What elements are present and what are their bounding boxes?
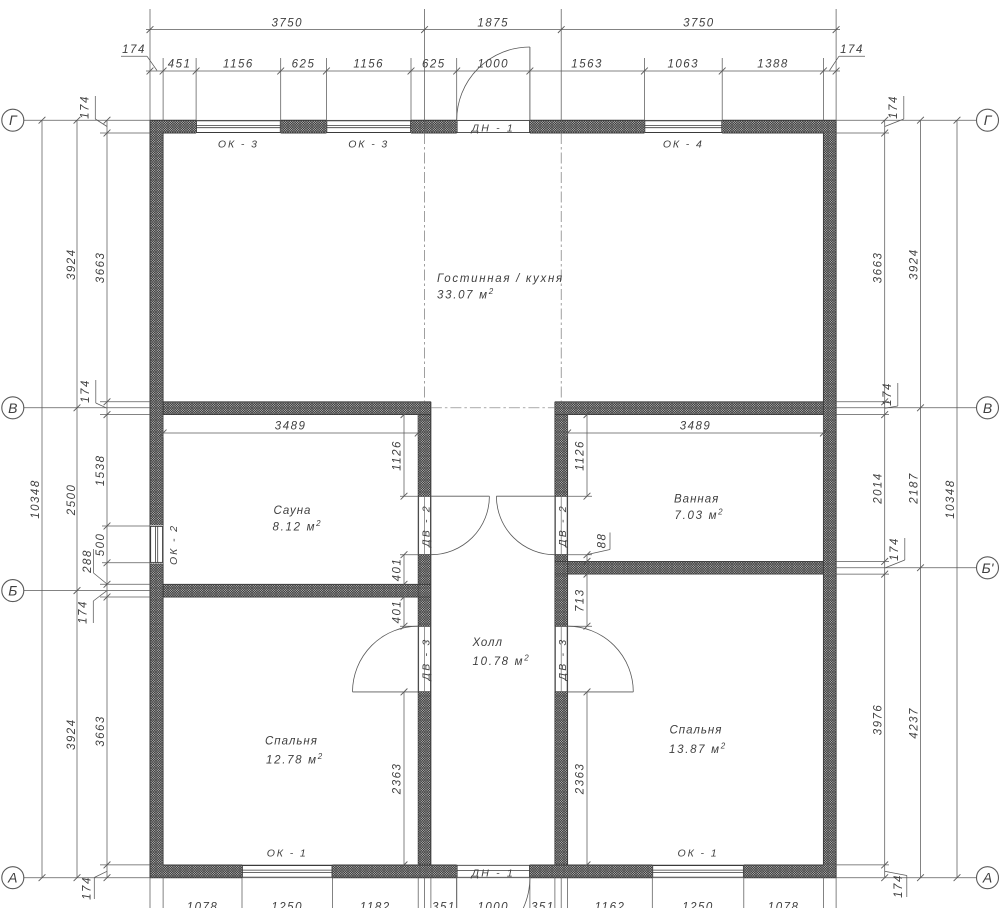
svg-text:451: 451	[168, 59, 192, 71]
svg-text:174: 174	[122, 44, 146, 56]
svg-text:2014: 2014	[873, 472, 885, 505]
svg-text:88: 88	[597, 533, 609, 549]
svg-text:Спальня: Спальня	[265, 736, 318, 748]
svg-text:1156: 1156	[223, 59, 254, 71]
svg-text:ДВ - 2: ДВ - 2	[420, 504, 432, 548]
svg-text:Спальня: Спальня	[670, 725, 723, 737]
svg-text:500: 500	[95, 533, 107, 557]
svg-text:351: 351	[531, 901, 555, 908]
svg-text:1000: 1000	[478, 901, 510, 908]
svg-text:3489: 3489	[680, 421, 712, 433]
svg-text:1156: 1156	[353, 59, 384, 71]
svg-text:1250: 1250	[682, 901, 714, 908]
svg-text:7.03 м2: 7.03 м2	[675, 507, 725, 522]
svg-text:А: А	[7, 870, 17, 886]
svg-text:3663: 3663	[95, 252, 107, 284]
svg-text:713: 713	[575, 588, 587, 612]
svg-text:625: 625	[422, 59, 446, 71]
svg-text:174: 174	[80, 95, 92, 119]
svg-text:4237: 4237	[909, 707, 921, 739]
svg-text:2363: 2363	[575, 763, 587, 796]
svg-text:174: 174	[78, 600, 90, 624]
svg-text:ДВ - 2: ДВ - 2	[557, 504, 569, 548]
svg-text:ДВ - 3: ДВ - 3	[420, 638, 432, 682]
svg-text:401: 401	[392, 600, 404, 624]
svg-text:3663: 3663	[873, 252, 885, 284]
svg-text:2187: 2187	[909, 472, 921, 505]
svg-text:ОК - 3: ОК - 3	[348, 138, 389, 150]
svg-text:Б: Б	[8, 583, 17, 599]
svg-text:1162: 1162	[595, 901, 626, 908]
svg-text:ОК - 3: ОК - 3	[218, 138, 259, 150]
svg-text:1078: 1078	[187, 901, 219, 908]
svg-text:ОК - 4: ОК - 4	[663, 138, 704, 150]
svg-text:13.87 м2: 13.87 м2	[669, 742, 727, 757]
svg-text:12.78 м2: 12.78 м2	[266, 752, 324, 767]
svg-text:174: 174	[80, 379, 92, 403]
svg-text:3924: 3924	[909, 248, 921, 280]
svg-text:1000: 1000	[478, 59, 510, 71]
svg-text:В: В	[8, 400, 17, 416]
svg-text:3976: 3976	[873, 704, 885, 736]
svg-text:174: 174	[888, 95, 900, 119]
svg-text:8.12 м2: 8.12 м2	[273, 519, 323, 534]
svg-text:Холл: Холл	[472, 637, 504, 649]
svg-text:174: 174	[889, 537, 901, 561]
svg-text:1875: 1875	[477, 17, 509, 29]
svg-text:В: В	[983, 400, 992, 416]
svg-text:3750: 3750	[272, 17, 304, 29]
svg-text:ОК - 2: ОК - 2	[168, 524, 180, 565]
svg-text:10.78 м2: 10.78 м2	[473, 653, 531, 668]
svg-text:401: 401	[392, 558, 404, 582]
svg-text:3924: 3924	[66, 248, 78, 280]
svg-text:174: 174	[893, 874, 905, 898]
svg-text:10348: 10348	[945, 479, 957, 518]
svg-text:ОК - 1: ОК - 1	[267, 847, 308, 859]
svg-text:ДН - 1: ДН - 1	[471, 868, 515, 880]
svg-text:1063: 1063	[668, 59, 700, 71]
svg-text:ДН - 1: ДН - 1	[471, 122, 515, 134]
svg-text:10348: 10348	[30, 479, 42, 518]
svg-text:3924: 3924	[66, 718, 78, 750]
svg-text:ОК - 1: ОК - 1	[678, 847, 719, 859]
svg-text:Сауна: Сауна	[274, 505, 312, 517]
svg-text:3489: 3489	[275, 421, 307, 433]
svg-text:1078: 1078	[768, 901, 800, 908]
svg-text:Б': Б'	[982, 560, 995, 576]
svg-text:174: 174	[82, 876, 94, 900]
svg-text:ДВ - 3: ДВ - 3	[557, 638, 569, 682]
svg-text:174: 174	[840, 44, 864, 56]
svg-text:1250: 1250	[271, 901, 303, 908]
svg-text:174: 174	[882, 382, 894, 406]
svg-text:1126: 1126	[575, 440, 587, 471]
svg-text:1388: 1388	[757, 59, 789, 71]
svg-text:А: А	[982, 870, 992, 886]
svg-text:288: 288	[82, 549, 94, 574]
svg-text:3663: 3663	[95, 715, 107, 747]
svg-text:1538: 1538	[95, 455, 107, 487]
svg-text:351: 351	[432, 901, 456, 908]
svg-text:Ванная: Ванная	[674, 493, 719, 505]
svg-text:2500: 2500	[66, 484, 78, 517]
svg-text:1182: 1182	[360, 901, 391, 908]
svg-text:33.07 м2: 33.07 м2	[437, 287, 495, 302]
svg-text:625: 625	[292, 59, 316, 71]
svg-text:1563: 1563	[571, 59, 603, 71]
svg-text:Гостинная / кухня: Гостинная / кухня	[437, 273, 564, 285]
svg-text:1126: 1126	[392, 440, 404, 471]
svg-text:3750: 3750	[683, 17, 715, 29]
svg-text:2363: 2363	[392, 763, 404, 796]
